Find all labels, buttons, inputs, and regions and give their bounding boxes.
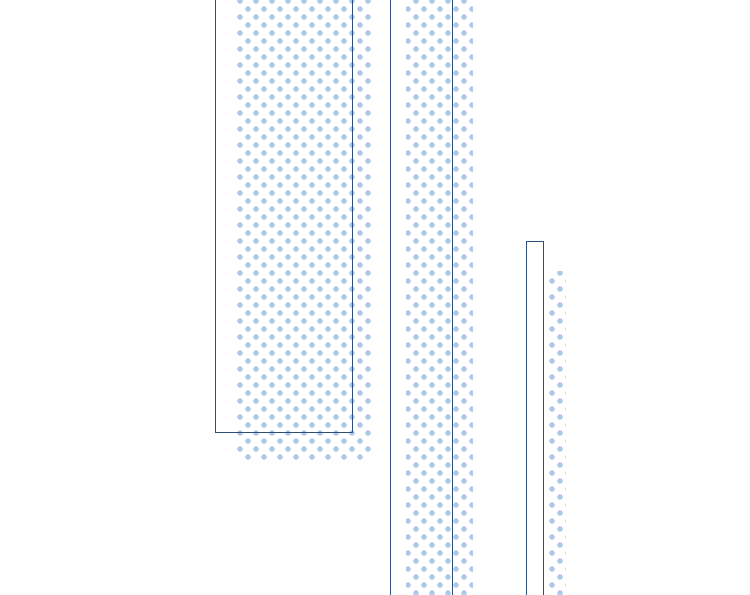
left-bar-outline bbox=[215, 0, 353, 433]
middle-bar-outline bbox=[390, 0, 453, 595]
right-bar-dot-shadow bbox=[549, 271, 566, 595]
halftone-graphic-canvas bbox=[0, 0, 750, 595]
right-bar-outline bbox=[526, 241, 544, 595]
